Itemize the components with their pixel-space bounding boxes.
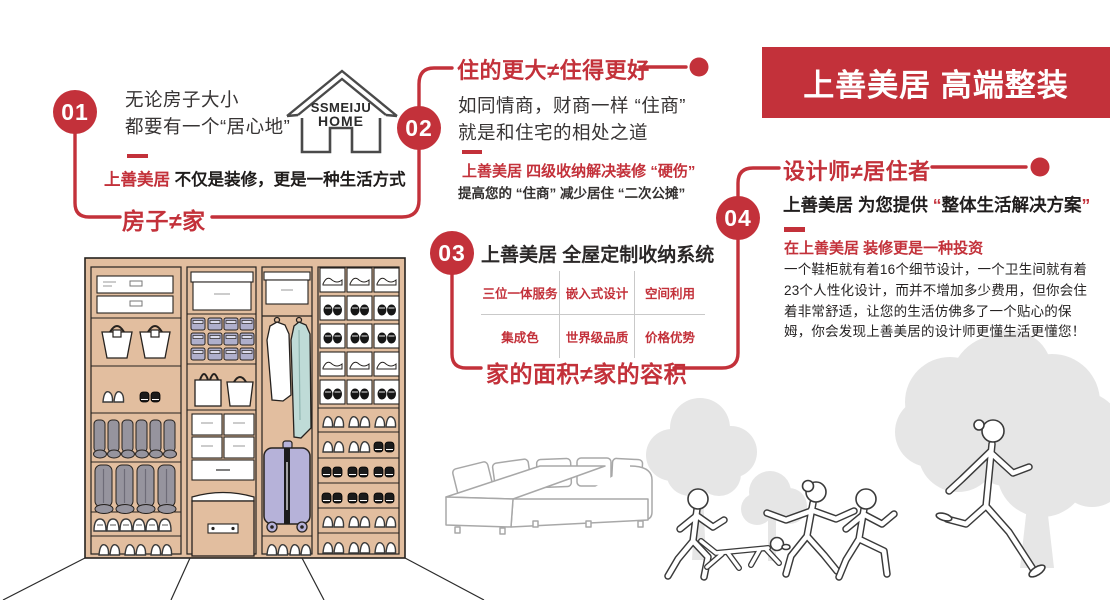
- feature-cell: 价格优势: [635, 315, 705, 358]
- step2-body-line2: 就是和住宅的相处之道: [458, 119, 686, 146]
- step2-body-line1: 如同情商，财商一样 “住商”: [458, 92, 686, 119]
- step1-sub-brand: 上善美居: [104, 171, 170, 189]
- step1-accent-dash: [127, 154, 148, 158]
- step4-paragraph: 一个鞋柜就有着16个细节设计，一个卫生间就有着23个人性化设计，而并不增加多少费…: [784, 260, 1089, 343]
- step4-lead-prefix: 上善美居 为您提供: [783, 195, 933, 215]
- step4-sub-red: 在上善美居 装修更是一种投资: [784, 237, 983, 258]
- logo-text-line2: HOME: [318, 113, 364, 129]
- step-circle-01: 01: [53, 90, 97, 134]
- brand-banner: 上善美居 高端整装: [762, 47, 1110, 118]
- sofa-illustration: [446, 458, 652, 534]
- infographic-poster: SSMEIJU HOME 上善美居 高端整装 01 无论房子大小 都要有一个“居…: [0, 0, 1110, 600]
- flow-dot-top: [690, 58, 709, 77]
- step-number-04: 04: [724, 205, 752, 232]
- feature-cell: 三位一体服务: [481, 271, 559, 315]
- runners-illustration: [668, 420, 1047, 579]
- step1-sub-rest: 不仅是装修，更是一种生活方式: [175, 171, 406, 189]
- flow-dot-right: [1031, 158, 1050, 177]
- step1-intro-line1: 无论房子大小: [125, 86, 290, 113]
- step-circle-04: 04: [716, 196, 760, 240]
- feature-cell: 世界级品质: [559, 315, 635, 358]
- step2-accent-dash: [462, 150, 482, 154]
- feature-cell: 集成色: [481, 315, 559, 358]
- step-circle-03: 03: [430, 231, 474, 275]
- step4-lead-quote-close: ”: [1081, 195, 1090, 215]
- wardrobe-illustration: [85, 258, 405, 558]
- step2-sub-black: 提高您的 “住商” 减少居住 “二次公摊”: [458, 182, 685, 202]
- step-number-03: 03: [438, 240, 466, 267]
- feature-grid: 三位一体服务 嵌入式设计 空间利用 集成色 世界级品质 价格优势: [481, 271, 705, 358]
- step2-heading: 住的更大≠住得更好: [457, 53, 650, 85]
- step1-intro-line2: 都要有一个“居心地”: [125, 113, 290, 140]
- step1-intro: 无论房子大小 都要有一个“居心地”: [125, 86, 290, 140]
- feature-cell: 空间利用: [635, 271, 705, 315]
- step-number-02: 02: [405, 115, 433, 142]
- step-number-01: 01: [61, 99, 89, 126]
- feature-cell: 嵌入式设计: [559, 271, 635, 315]
- step4-lead-quoted: 整体生活解决方案: [941, 195, 1081, 215]
- step3-slogan: 家的面积≠家的容积: [486, 355, 687, 389]
- step4-accent-dash: [784, 227, 805, 232]
- step1-subline: 上善美居 不仅是装修，更是一种生活方式: [104, 166, 406, 190]
- step4-lead: 上善美居 为您提供 “整体生活解决方案”: [783, 192, 1090, 217]
- step3-heading: 上善美居 全屋定制收纳系统: [481, 240, 714, 267]
- step-circle-02: 02: [397, 106, 441, 150]
- step4-heading: 设计师≠居住者: [783, 154, 931, 186]
- banner-title: 上善美居 高端整装: [803, 60, 1069, 105]
- step2-body: 如同情商，财商一样 “住商” 就是和住宅的相处之道: [458, 92, 686, 146]
- floor-lines: [3, 558, 484, 600]
- house-logo: SSMEIJU HOME: [280, 60, 406, 160]
- step1-slogan: 房子≠家: [122, 202, 206, 236]
- step2-sub-red: 上善美居 四级收纳解决装修 “硬伤”: [462, 160, 695, 181]
- trees-illustration: [646, 330, 1110, 568]
